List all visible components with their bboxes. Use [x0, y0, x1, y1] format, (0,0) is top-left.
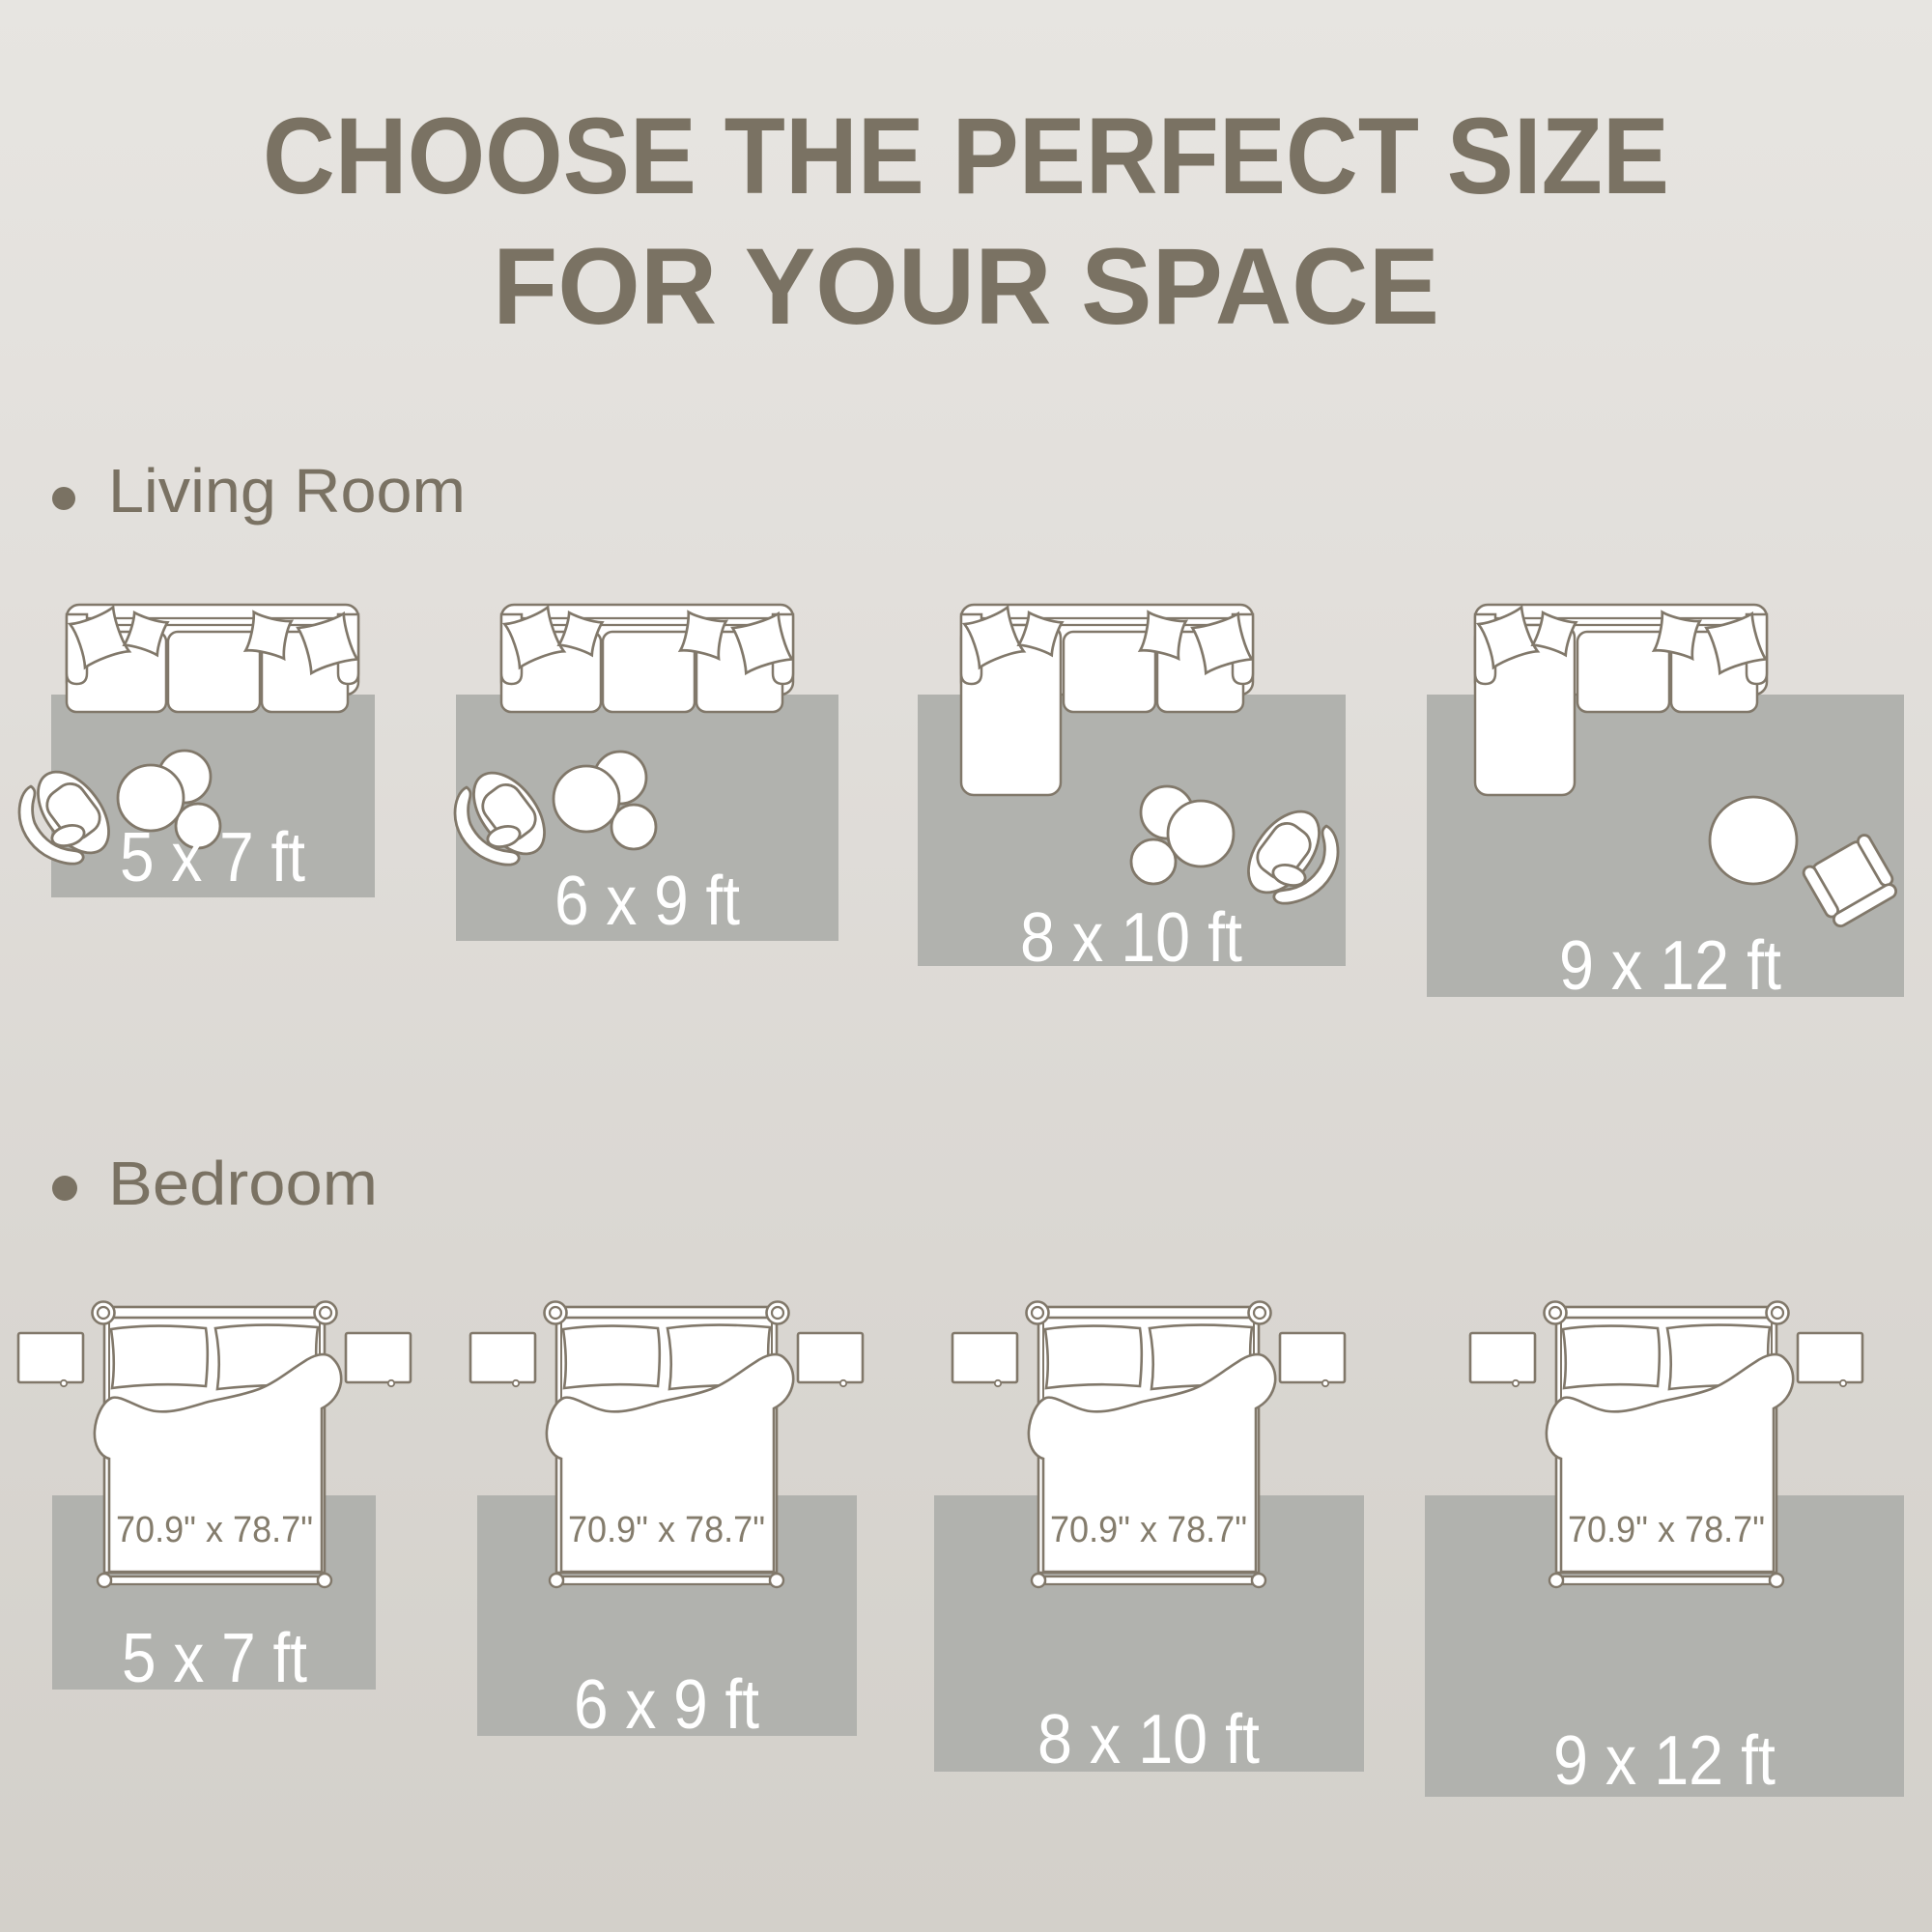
svg-text:FOR YOUR SPACE: FOR YOUR SPACE [493, 226, 1439, 347]
svg-text:5 x 7 ft: 5 x 7 ft [122, 1620, 307, 1697]
svg-text:Living Room: Living Room [108, 456, 466, 526]
svg-text:8 x 10 ft: 8 x 10 ft [1037, 1701, 1260, 1778]
svg-text:CHOOSE THE PERFECT SIZE: CHOOSE THE PERFECT SIZE [263, 96, 1669, 216]
svg-text:6 x 9 ft: 6 x 9 ft [574, 1666, 759, 1744]
svg-text:9 x 12 ft: 9 x 12 ft [1553, 1722, 1776, 1800]
svg-text:9 x 12 ft: 9 x 12 ft [1559, 927, 1781, 1005]
svg-text:6 x 9 ft: 6 x 9 ft [554, 863, 740, 940]
svg-text:8 x 10 ft: 8 x 10 ft [1020, 899, 1242, 977]
svg-text:5 x 7 ft: 5 x 7 ft [120, 819, 305, 896]
svg-text:Bedroom: Bedroom [108, 1149, 378, 1218]
